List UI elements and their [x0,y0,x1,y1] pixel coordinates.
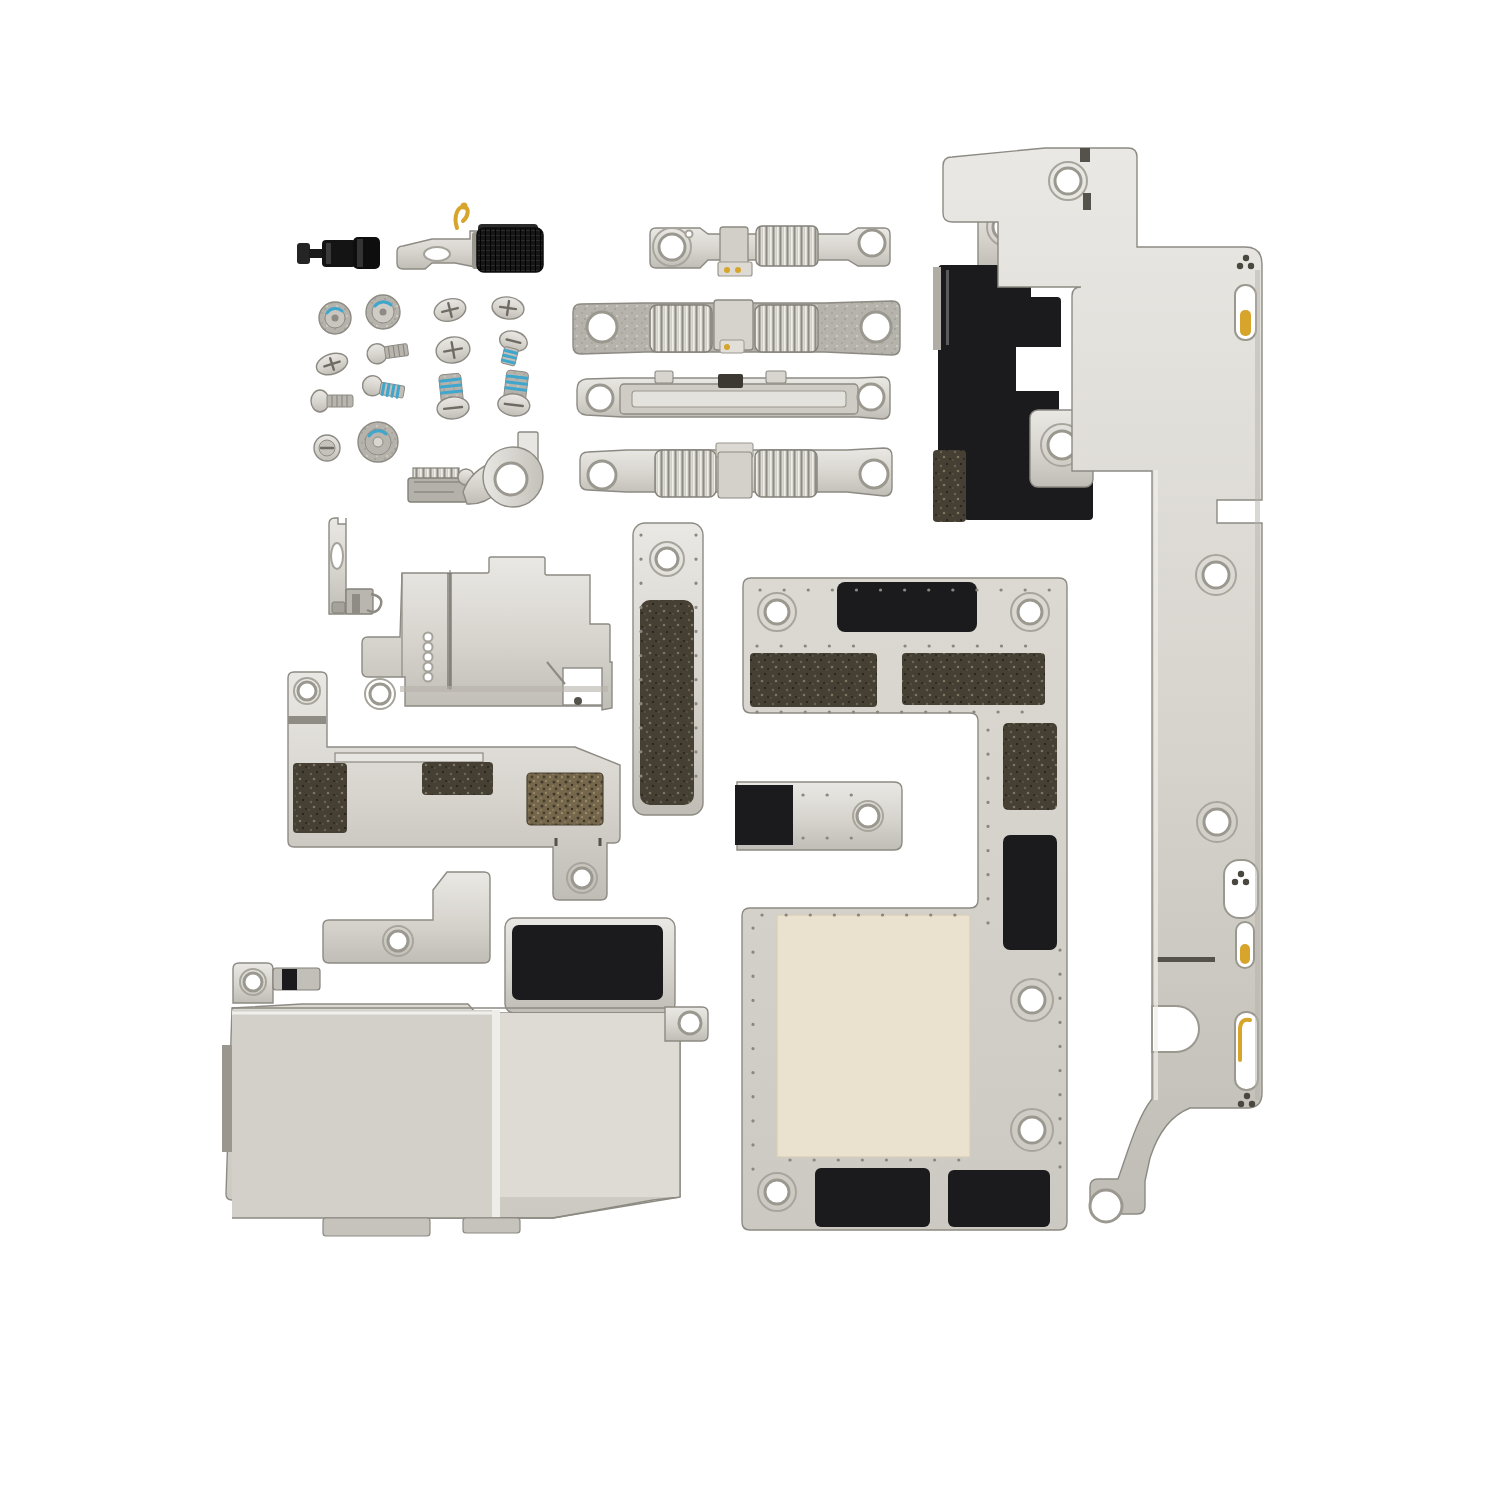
vertical-pad-strip-bracket [633,523,703,815]
foam-pad [933,450,966,522]
foam-pad [902,653,1045,705]
screw-standoff-blue [358,422,398,462]
foam-pad [293,763,347,833]
screw-washer-blue [319,302,351,334]
mesh-roller [477,228,543,272]
gold-contact [1240,944,1250,964]
screw-washer-blue [366,295,400,329]
screw-round [314,435,340,461]
black-pad [815,1168,930,1227]
cable-clamp-bracket-2 [573,300,900,355]
foam-pad [750,653,877,707]
black-pad [735,785,793,845]
contact-eyelets [424,633,433,682]
foam-pad [1003,723,1057,810]
c-cutout [1152,1006,1199,1052]
black-pad [948,1170,1050,1227]
brown-foam-pad [527,773,603,825]
black-pad [1003,835,1057,950]
cable-clamp-bracket-3 [577,371,890,419]
padded-arm-bracket [735,782,902,850]
cream-inlay [777,915,970,1157]
black-pad [512,925,663,1000]
parts-photo [0,0,1500,1500]
cable-clamp-bracket-4 [580,443,892,498]
product-photo-stage [0,0,1500,1500]
black-pad [640,600,694,805]
foam-pad [422,762,493,795]
white-background [0,0,1500,1500]
gold-contact [1240,310,1251,336]
